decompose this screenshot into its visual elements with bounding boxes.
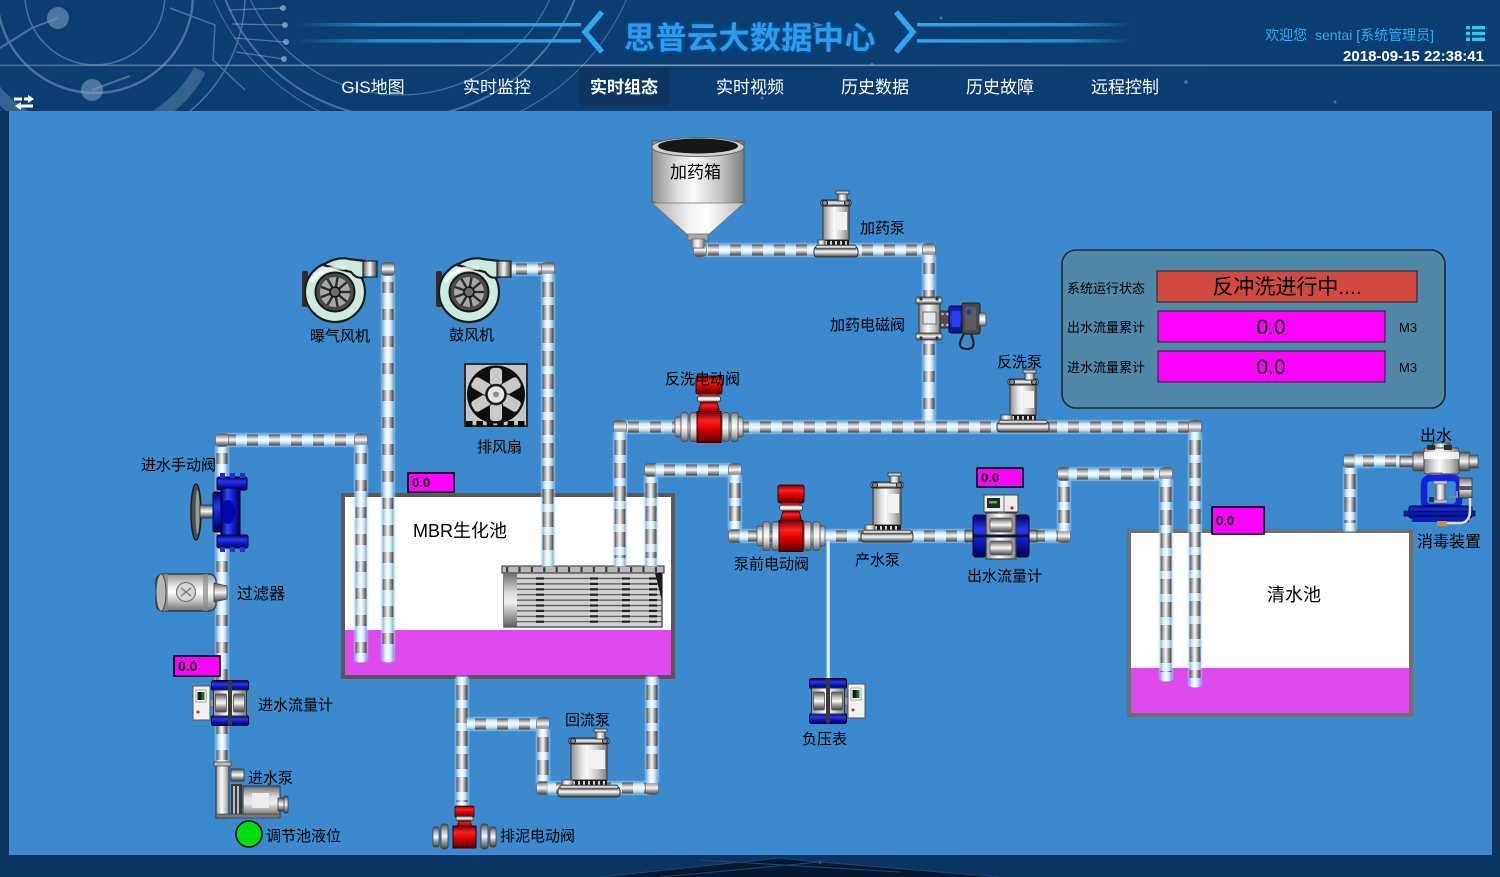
svg-text:加药泵: 加药泵 [860, 220, 905, 237]
svg-text:0.0: 0.0 [178, 658, 198, 674]
svg-text:清水池: 清水池 [1267, 585, 1321, 605]
svg-text:系统运行状态: 系统运行状态 [1067, 281, 1145, 296]
svg-text:鼓风机: 鼓风机 [449, 327, 494, 344]
svg-text:进水泵: 进水泵 [248, 770, 293, 787]
svg-text:排泥电动阀: 排泥电动阀 [500, 828, 575, 845]
svg-text:调节池液位: 调节池液位 [266, 828, 341, 845]
svg-text:进水手动阀: 进水手动阀 [141, 457, 216, 474]
svg-text:出水: 出水 [1420, 427, 1452, 445]
svg-text:反洗泵: 反洗泵 [997, 354, 1042, 371]
svg-text:负压表: 负压表 [802, 731, 847, 748]
svg-text:泵前电动阀: 泵前电动阀 [734, 556, 809, 573]
svg-text:M3: M3 [1399, 360, 1417, 375]
svg-text:排风扇: 排风扇 [477, 439, 522, 456]
svg-text:加药箱: 加药箱 [670, 163, 721, 182]
svg-text:MBR生化池: MBR生化池 [413, 521, 507, 541]
svg-text:出水流量计: 出水流量计 [967, 568, 1042, 585]
svg-text:反冲洗进行中....: 反冲洗进行中.... [1212, 276, 1361, 299]
svg-text:过滤器: 过滤器 [237, 585, 285, 603]
svg-text:反洗电动阀: 反洗电动阀 [665, 371, 740, 388]
svg-text:回流泵: 回流泵 [565, 712, 610, 729]
svg-text:出水流量累计: 出水流量累计 [1067, 320, 1145, 335]
svg-text:0.0: 0.0 [981, 470, 999, 485]
svg-text:产水泵: 产水泵 [855, 552, 900, 569]
svg-text:消毒装置: 消毒装置 [1417, 533, 1481, 551]
svg-text:0.0: 0.0 [1216, 513, 1234, 528]
svg-text:进水流量计: 进水流量计 [258, 697, 333, 714]
svg-text:0.0: 0.0 [1256, 356, 1285, 379]
svg-text:0.0: 0.0 [412, 475, 430, 490]
svg-text:0.0: 0.0 [1256, 316, 1285, 339]
svg-text:加药电磁阀: 加药电磁阀 [830, 317, 905, 334]
svg-text:曝气风机: 曝气风机 [310, 328, 370, 345]
svg-text:进水流量累计: 进水流量累计 [1067, 360, 1145, 375]
svg-text:M3: M3 [1399, 320, 1417, 335]
